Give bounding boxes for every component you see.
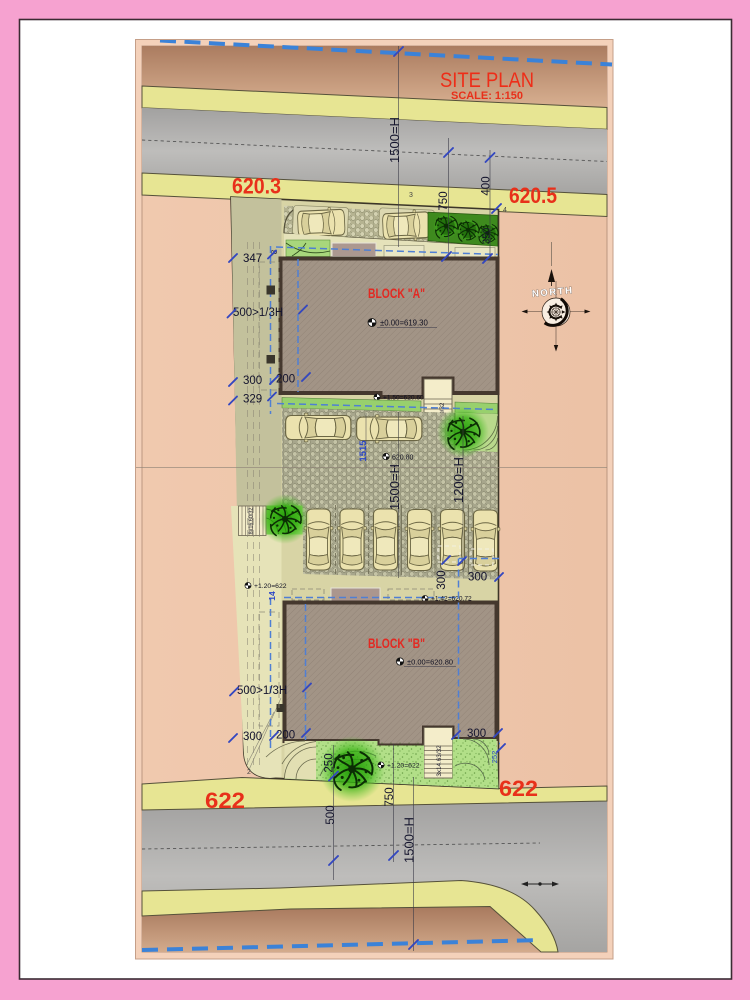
- svg-text:622: 622: [205, 788, 245, 813]
- svg-text:1500=H: 1500=H: [387, 117, 402, 163]
- svg-text:300: 300: [243, 731, 262, 743]
- svg-text:622: 622: [499, 776, 538, 801]
- svg-text:500: 500: [325, 805, 337, 824]
- svg-text:350: 350: [482, 227, 493, 244]
- svg-text:250: 250: [324, 753, 336, 772]
- svg-text:1515: 1515: [358, 440, 369, 462]
- svg-text:750: 750: [438, 191, 450, 210]
- svg-text:14: 14: [267, 591, 277, 601]
- svg-text:300: 300: [243, 375, 262, 387]
- svg-text:347: 347: [243, 253, 262, 265]
- svg-text:300: 300: [436, 570, 448, 589]
- svg-text:200: 200: [276, 374, 295, 386]
- svg-text:BLOCK "B": BLOCK "B": [368, 636, 425, 651]
- svg-text:±0.00=620.80: ±0.00=620.80: [407, 658, 453, 667]
- svg-text:4: 4: [503, 207, 507, 214]
- svg-text:500>1/3H: 500>1/3H: [237, 685, 287, 697]
- svg-text:300: 300: [468, 572, 487, 584]
- svg-text:SITE PLAN: SITE PLAN: [440, 69, 534, 92]
- svg-text:620.80: 620.80: [392, 455, 414, 462]
- svg-text:BLOCK "A": BLOCK "A": [368, 286, 425, 301]
- svg-text:200: 200: [276, 730, 295, 742]
- svg-text:1500=H: 1500=H: [387, 464, 402, 510]
- svg-text:±0.00=619.30: ±0.00=619.30: [380, 319, 429, 328]
- svg-text:SCALE: 1:150: SCALE: 1:150: [451, 90, 523, 102]
- svg-text:1500=H: 1500=H: [402, 817, 417, 863]
- svg-text:300: 300: [467, 728, 486, 740]
- svg-text:3: 3: [409, 192, 413, 199]
- svg-text:500>1/3H: 500>1/3H: [233, 307, 283, 319]
- svg-text:3x14.63/32: 3x14.63/32: [436, 745, 443, 777]
- svg-text:329: 329: [243, 394, 262, 406]
- svg-text:1200=H: 1200=H: [451, 457, 466, 503]
- svg-text:750: 750: [384, 787, 396, 806]
- svg-text:+1.20=622: +1.20=622: [254, 583, 287, 590]
- svg-text:620.3: 620.3: [232, 174, 281, 199]
- svg-text:620.5: 620.5: [509, 183, 557, 208]
- svg-text:400: 400: [481, 176, 493, 195]
- svg-text:2: 2: [247, 769, 251, 776]
- svg-text:+1.20=622: +1.20=622: [387, 763, 420, 770]
